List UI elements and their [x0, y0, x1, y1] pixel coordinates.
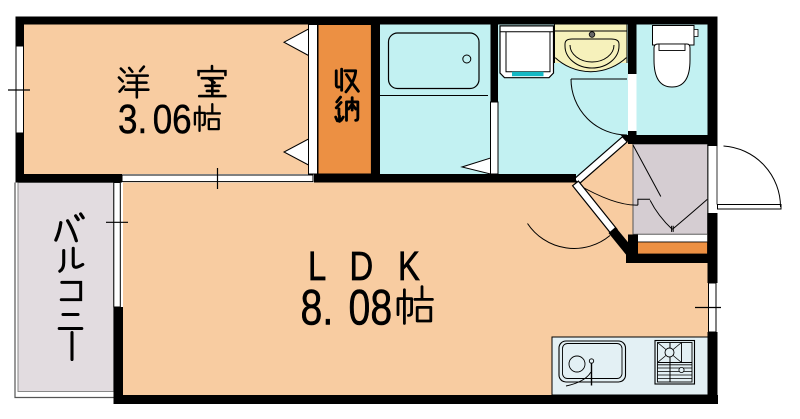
svg-text:06: 06: [153, 96, 192, 142]
svg-text:3.: 3.: [118, 96, 147, 142]
svg-text:8.: 8.: [301, 280, 334, 335]
svg-text:K: K: [398, 242, 420, 288]
svg-text:08: 08: [349, 280, 393, 335]
